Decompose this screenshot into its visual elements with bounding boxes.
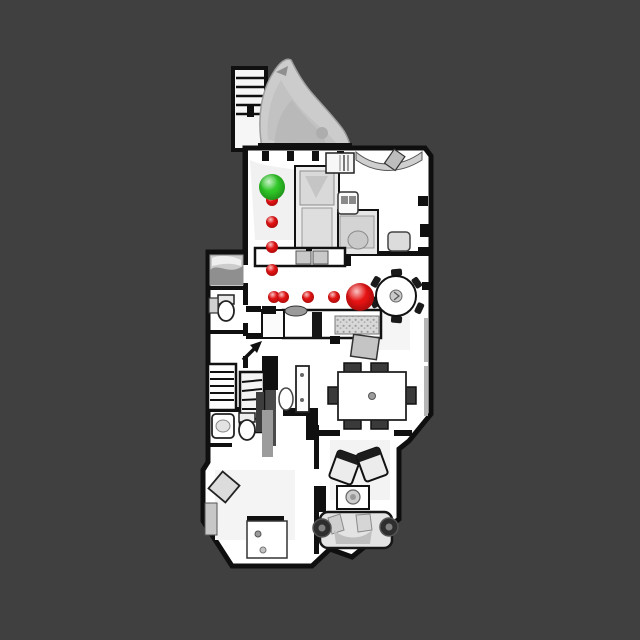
floorplan [0, 0, 640, 640]
kitchen-island [255, 247, 345, 266]
dining-table [328, 363, 416, 429]
floorplan-canvas [0, 0, 640, 640]
closet-storage [210, 255, 243, 285]
desk-chair [279, 388, 293, 410]
side-shelf [338, 192, 358, 214]
radiator [424, 318, 428, 416]
lounge-sofa [313, 512, 398, 548]
fireplace [326, 153, 354, 173]
coffee-table [337, 486, 369, 509]
bathroom-fixtures [212, 413, 255, 440]
door-leaf [296, 366, 309, 412]
scan-artifact-blob [258, 59, 352, 148]
ottoman [388, 232, 410, 251]
staircase-left [208, 364, 236, 410]
toilet [218, 295, 234, 321]
bay-room-cabinet [205, 503, 217, 535]
bay-room-desk [247, 516, 287, 558]
hall-door [262, 410, 273, 457]
hall-sink [209, 298, 218, 313]
